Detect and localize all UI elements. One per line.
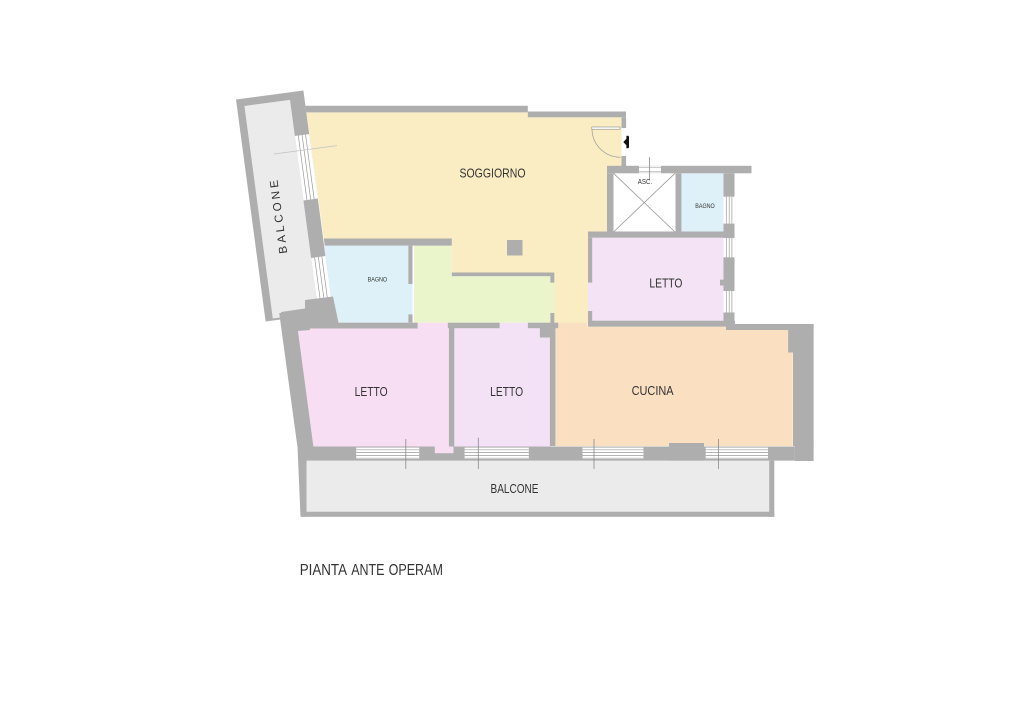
svg-text:ASC.: ASC. (638, 179, 653, 186)
svg-text:CUCINA: CUCINA (632, 384, 675, 398)
svg-text:BAGNO: BAGNO (695, 203, 715, 210)
svg-text:LETTO: LETTO (649, 277, 682, 291)
svg-text:BAGNO: BAGNO (368, 277, 388, 284)
svg-text:ANTE: ANTE (351, 562, 384, 579)
svg-text:SOGGIORNO: SOGGIORNO (460, 167, 526, 181)
svg-text:LETTO: LETTO (355, 385, 388, 399)
svg-text:PIANTA: PIANTA (300, 562, 348, 579)
svg-text:OPERAM: OPERAM (389, 562, 443, 579)
svg-text:BALCONE: BALCONE (491, 482, 539, 496)
svg-text:LETTO: LETTO (490, 385, 523, 399)
